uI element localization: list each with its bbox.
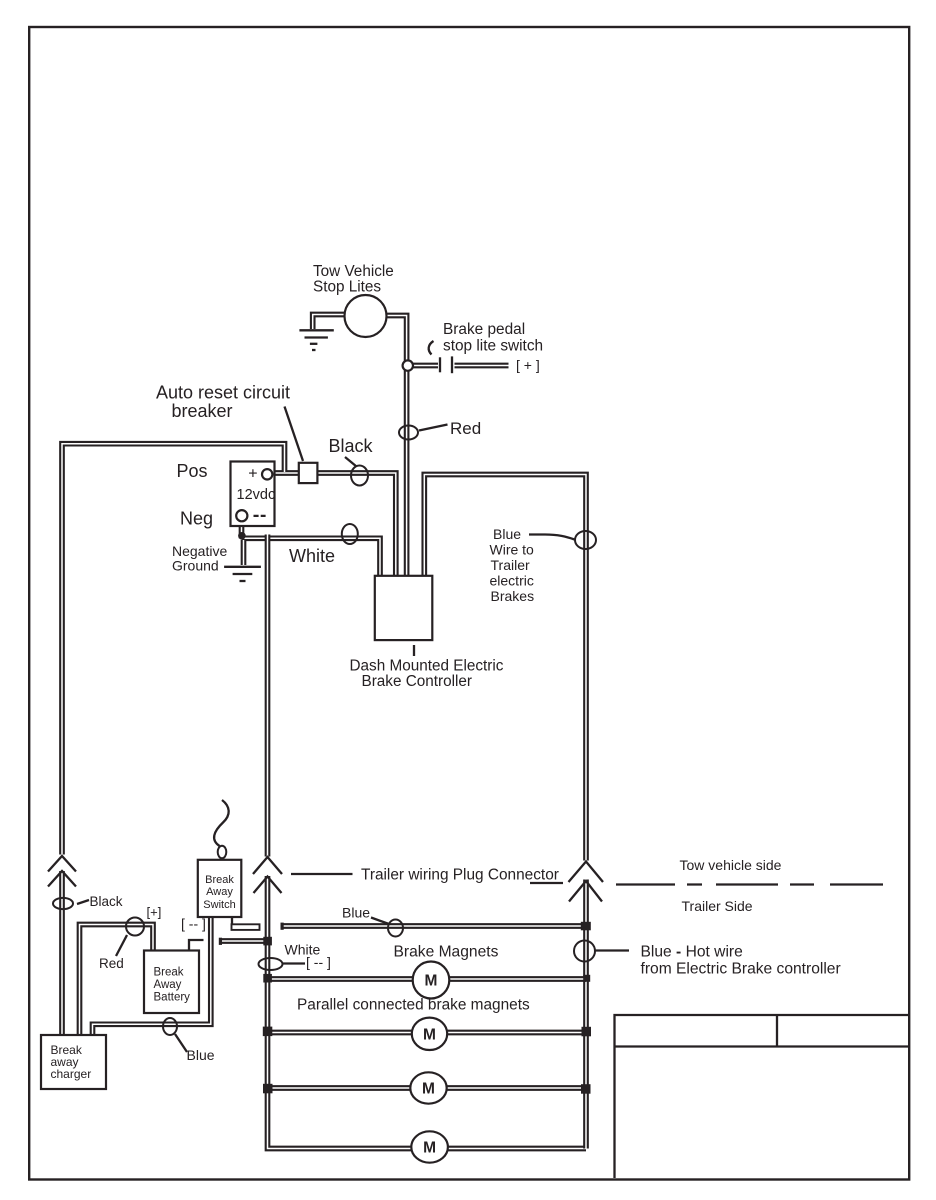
svg-text:Switch: Switch — [203, 899, 235, 911]
svg-text:Break: Break — [154, 967, 184, 979]
svg-text:Battery: Battery — [154, 992, 191, 1004]
svg-text:[ + ]: [ + ] — [516, 357, 540, 373]
svg-text:Blue: Blue — [493, 526, 521, 542]
svg-text:Black: Black — [329, 436, 374, 456]
svg-text:Red: Red — [99, 956, 124, 971]
svg-text:Tow Vehicle: Tow Vehicle — [313, 263, 394, 280]
svg-text:Away: Away — [206, 886, 233, 898]
svg-text:Trailer Side: Trailer Side — [682, 898, 753, 914]
svg-text:Trailer: Trailer — [491, 557, 530, 573]
svg-text:Parallel connected brake magne: Parallel connected brake magnets — [297, 997, 530, 1014]
svg-text:Wire to: Wire to — [490, 542, 535, 558]
svg-text:[ -- ]: [ -- ] — [181, 916, 206, 932]
svg-text:Red: Red — [450, 419, 481, 438]
svg-text:+: + — [248, 466, 257, 483]
svg-text:stop lite switch: stop lite switch — [443, 338, 543, 355]
svg-text:from Electric Brake controller: from Electric Brake controller — [641, 961, 841, 978]
svg-text:12vdc: 12vdc — [237, 487, 276, 503]
svg-text:M: M — [423, 1026, 436, 1043]
svg-text:breaker: breaker — [172, 401, 233, 421]
svg-text:Dash Mounted Electric: Dash Mounted Electric — [350, 658, 504, 675]
svg-text:Blue - Hot wire: Blue - Hot wire — [641, 944, 743, 961]
svg-text:Pos: Pos — [177, 461, 208, 481]
svg-text:Ground: Ground — [172, 558, 219, 574]
svg-text:Tow vehicle side: Tow vehicle side — [680, 857, 782, 873]
svg-text:Stop Lites: Stop Lites — [313, 279, 381, 296]
svg-text:M: M — [422, 1081, 435, 1098]
svg-text:Away: Away — [154, 979, 182, 991]
svg-text:Brakes: Brakes — [491, 588, 535, 604]
svg-text:Neg: Neg — [180, 509, 213, 529]
svg-text:Black: Black — [90, 894, 123, 909]
svg-text:Trailer wiring Plug Connector: Trailer wiring Plug Connector — [361, 867, 559, 884]
svg-text:Break: Break — [205, 874, 234, 886]
svg-text:Brake Magnets: Brake Magnets — [394, 944, 499, 961]
svg-text:[ -- ]: [ -- ] — [306, 954, 331, 970]
svg-text:M: M — [425, 973, 438, 990]
svg-text:M: M — [423, 1140, 436, 1157]
svg-text:Auto reset circuit: Auto reset circuit — [156, 383, 290, 403]
svg-text:[+]: [+] — [147, 905, 162, 920]
svg-text:Brake pedal: Brake pedal — [443, 321, 525, 338]
svg-text:White: White — [289, 546, 335, 566]
svg-text:charger: charger — [51, 1067, 92, 1081]
svg-text:Brake Controller: Brake Controller — [362, 673, 473, 690]
svg-text:Blue: Blue — [342, 905, 370, 921]
svg-text:Blue: Blue — [187, 1047, 215, 1063]
svg-text:electric: electric — [490, 573, 534, 589]
